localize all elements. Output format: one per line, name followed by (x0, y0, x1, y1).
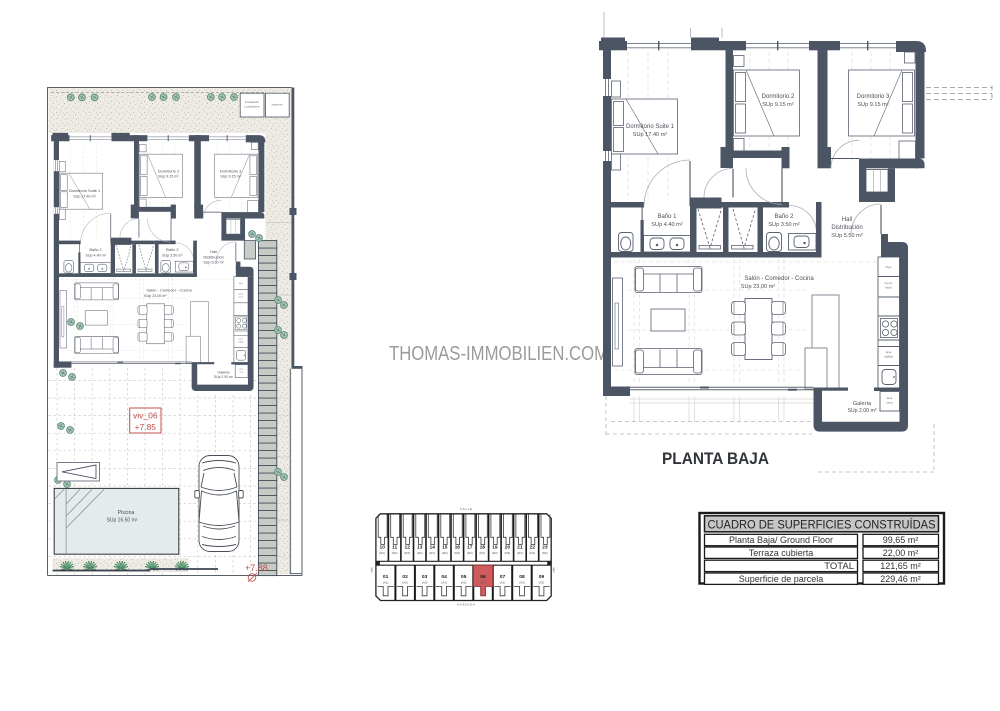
svg-text:(R1): (R1) (429, 551, 435, 555)
svg-text:A V E N I D A: A V E N I D A (457, 603, 475, 607)
svg-text:(R4): (R4) (417, 551, 423, 555)
svg-text:calle: calle (370, 567, 374, 573)
svg-text:(R3): (R3) (404, 551, 410, 555)
svg-text:20: 20 (505, 545, 511, 551)
svg-text:(R2): (R2) (492, 551, 498, 555)
svg-text:01: 01 (383, 574, 389, 580)
svg-text:(A1): (A1) (383, 580, 389, 584)
svg-text:121,65 m²: 121,65 m² (880, 561, 921, 571)
svg-text:instalación: instalación (245, 100, 260, 104)
svg-text:C A L L E: C A L L E (460, 507, 472, 511)
svg-text:15: 15 (442, 545, 448, 551)
svg-text:(R1): (R1) (379, 551, 385, 555)
svg-text:basuras: basuras (272, 103, 283, 107)
svg-text:THOMAS-IMMOBILIEN.COM: THOMAS-IMMOBILIEN.COM (389, 342, 608, 365)
svg-text:22,00 m²: 22,00 m² (883, 548, 919, 558)
svg-text:21: 21 (517, 545, 523, 551)
svg-text:07: 07 (500, 574, 506, 580)
svg-text:18: 18 (480, 545, 486, 551)
svg-text:+7.85: +7.85 (135, 422, 157, 432)
svg-text:(A1): (A1) (500, 580, 506, 584)
svg-text:+7.88: +7.88 (245, 563, 268, 573)
svg-text:14: 14 (429, 545, 435, 551)
svg-text:(R4): (R4) (517, 551, 523, 555)
svg-text:16: 16 (455, 545, 461, 551)
svg-text:Terraza cubierta: Terraza cubierta (749, 548, 814, 558)
svg-text:Superficie de parcela: Superficie de parcela (739, 574, 824, 584)
svg-text:CUADRO DE SUPERFICIES CONSTRUÍ: CUADRO DE SUPERFICIES CONSTRUÍDAS (708, 517, 936, 532)
svg-text:TOTAL: TOTAL (824, 561, 854, 572)
svg-text:04: 04 (441, 574, 447, 580)
svg-text:23: 23 (542, 545, 548, 551)
svg-text:calle: calle (552, 567, 556, 573)
svg-text:(A2): (A2) (519, 580, 525, 584)
svg-text:(A3): (A3) (422, 580, 428, 584)
svg-text:(R3): (R3) (454, 551, 460, 555)
svg-text:10: 10 (379, 545, 385, 551)
svg-text:Piscina: Piscina (118, 510, 135, 516)
svg-text:(R4): (R4) (467, 551, 473, 555)
svg-text:SUp 16.50 m²: SUp 16.50 m² (107, 518, 138, 524)
svg-text:02: 02 (402, 574, 408, 580)
svg-text:13: 13 (417, 545, 423, 551)
svg-text:Planta Baja/ Ground Floor: Planta Baja/ Ground Floor (729, 535, 833, 545)
svg-text:(R1): (R1) (479, 551, 485, 555)
svg-text:05: 05 (461, 574, 467, 580)
svg-text:contadores: contadores (245, 105, 260, 109)
svg-text:(A1): (A1) (441, 580, 447, 584)
svg-text:(R2): (R2) (392, 551, 398, 555)
svg-text:09: 09 (539, 574, 545, 580)
svg-text:(A2): (A2) (402, 580, 408, 584)
svg-text:11: 11 (392, 545, 397, 551)
svg-text:03: 03 (422, 574, 428, 580)
svg-text:(R1): (R1) (529, 551, 535, 555)
svg-text:(A2): (A2) (461, 580, 467, 584)
svg-text:(R2): (R2) (442, 551, 448, 555)
svg-text:08: 08 (519, 574, 525, 580)
svg-text:17: 17 (467, 545, 473, 551)
svg-text:viv_06: viv_06 (133, 411, 158, 421)
svg-text:(A3): (A3) (480, 580, 486, 584)
svg-text:99,65 m²: 99,65 m² (883, 535, 919, 545)
svg-text:06: 06 (480, 574, 486, 580)
svg-text:229,46 m²: 229,46 m² (880, 574, 921, 584)
svg-text:PLANTA BAJA: PLANTA BAJA (662, 449, 769, 468)
svg-text:19: 19 (492, 545, 498, 551)
svg-text:(R3): (R3) (504, 551, 510, 555)
svg-text:(R2): (R2) (542, 551, 548, 555)
svg-text:(A3): (A3) (539, 580, 545, 584)
svg-text:22: 22 (530, 545, 536, 551)
svg-text:12: 12 (404, 545, 410, 551)
